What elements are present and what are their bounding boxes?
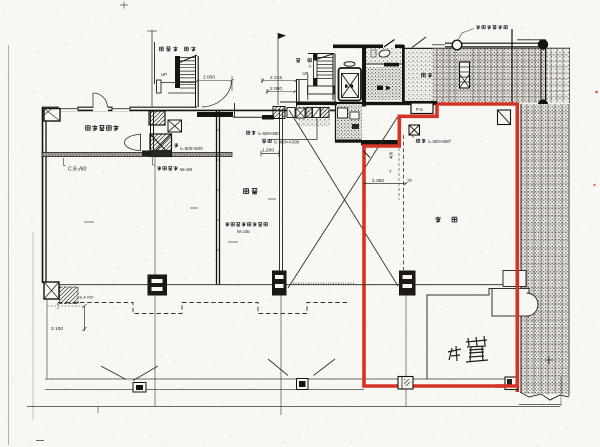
svg-text:400: 400 [389, 151, 394, 159]
svg-text:3 100: 3 100 [51, 326, 63, 332]
svg-text:/o 600×600º: /o 600×600º [428, 139, 452, 144]
svg-text:50: 50 [408, 178, 413, 183]
svg-text:2.350: 2.350 [372, 178, 384, 184]
svg-text:E.A t/20: E.A t/20 [80, 295, 95, 300]
svg-text:/o 400×4.000: /o 400×4.000 [274, 139, 300, 144]
svg-text:UP: UP [161, 72, 167, 77]
svg-text:2 215: 2 215 [270, 75, 282, 81]
svg-text:2.000: 2.000 [203, 75, 215, 81]
svg-text:C.B t/60: C.B t/60 [68, 167, 87, 173]
svg-text:W=80: W=80 [180, 167, 193, 172]
svg-text:/o 600×600: /o 600×600 [180, 146, 203, 151]
svg-text:2 000: 2 000 [270, 86, 282, 92]
svg-text:A: A [309, 64, 312, 69]
svg-text:P.S: P.S [416, 107, 423, 112]
svg-text:1.200: 1.200 [262, 148, 274, 154]
svg-text:W=25c: W=25c [237, 229, 250, 234]
svg-text:/o 600×600: /o 600×600 [258, 131, 280, 136]
